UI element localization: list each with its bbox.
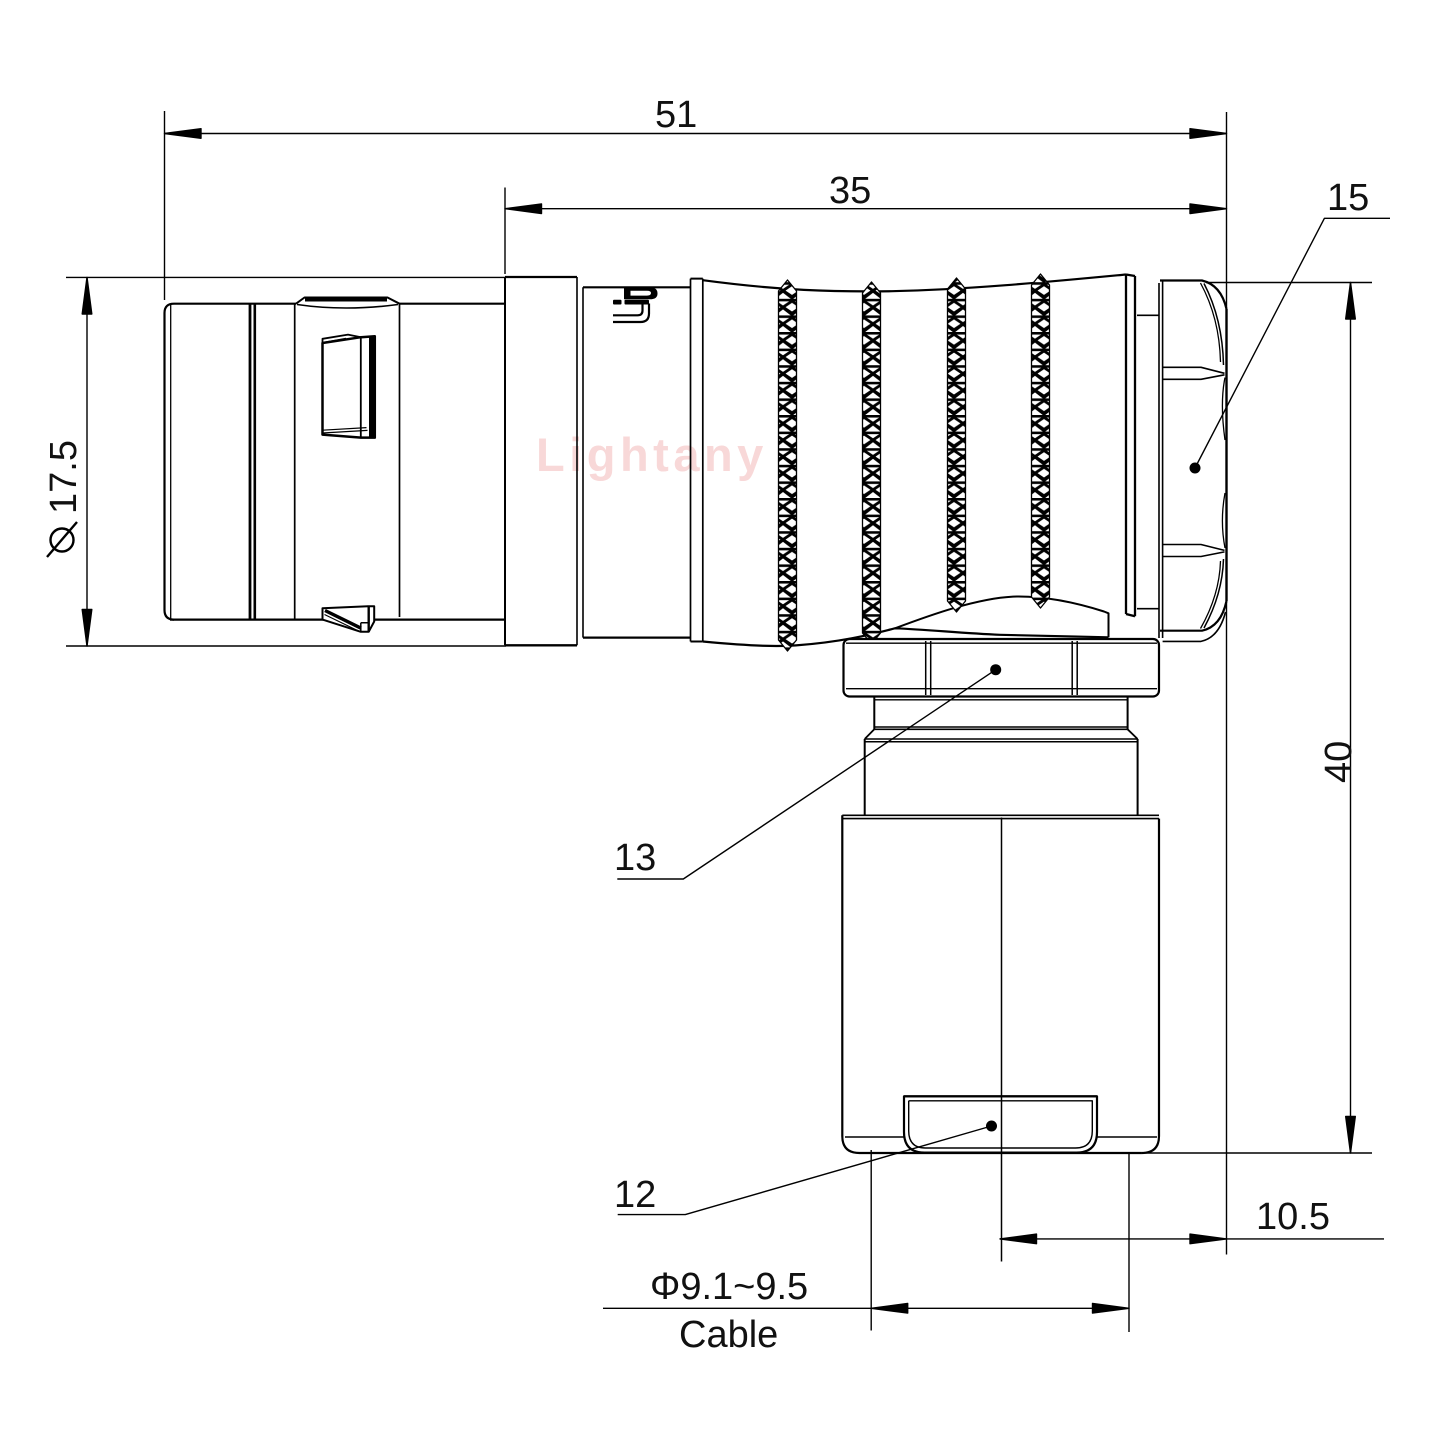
svg-text:Φ9.1~9.5: Φ9.1~9.5 bbox=[650, 1266, 808, 1308]
svg-text:51: 51 bbox=[655, 94, 697, 136]
svg-text:Lightany: Lightany bbox=[536, 428, 768, 481]
svg-text:13: 13 bbox=[614, 837, 656, 879]
svg-text:35: 35 bbox=[829, 170, 871, 212]
svg-text:40: 40 bbox=[1318, 741, 1360, 783]
svg-text:10.5: 10.5 bbox=[1256, 1196, 1330, 1238]
svg-text:Cable: Cable bbox=[679, 1314, 778, 1356]
svg-text:17.5: 17.5 bbox=[43, 440, 85, 514]
svg-text:12: 12 bbox=[614, 1174, 656, 1216]
svg-text:15: 15 bbox=[1327, 177, 1369, 219]
